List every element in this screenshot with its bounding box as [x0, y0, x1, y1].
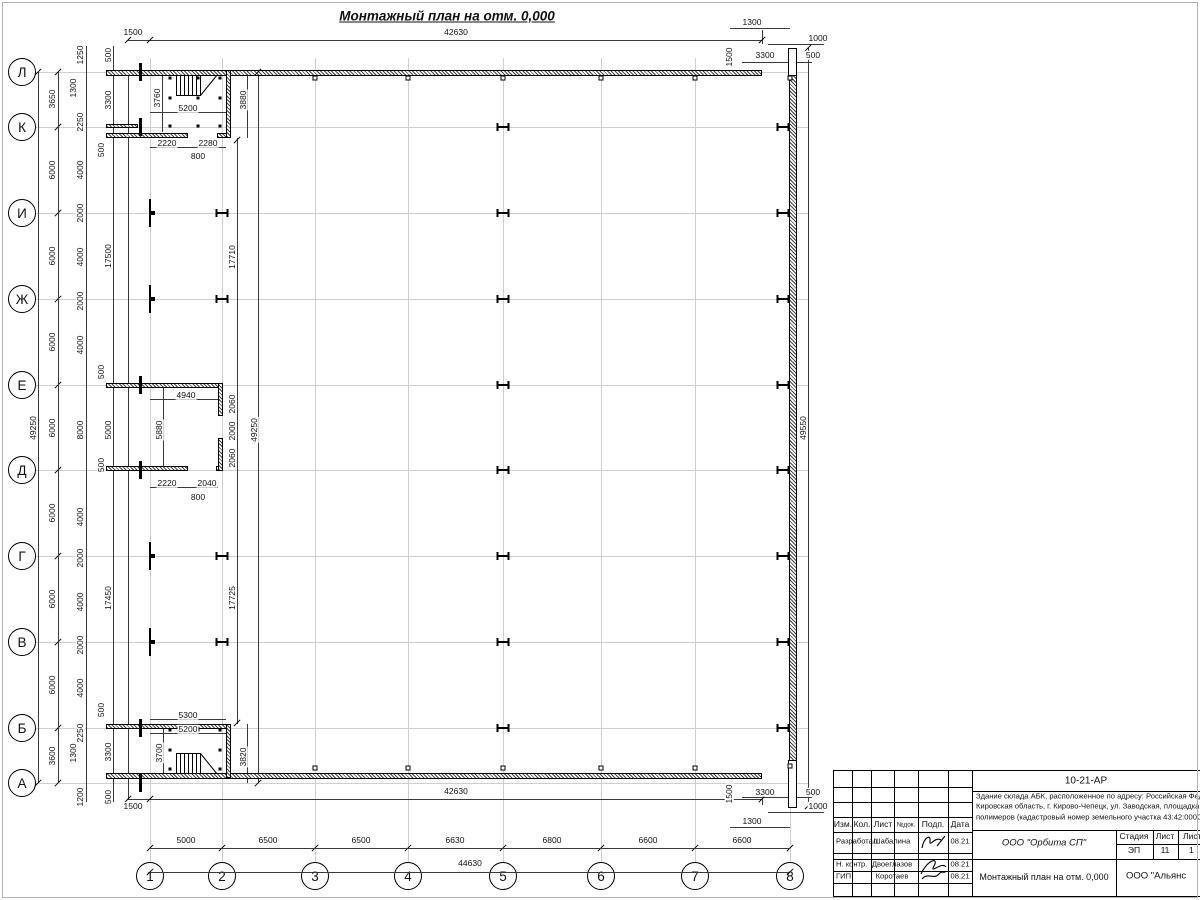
wall: [226, 724, 231, 778]
wall: [226, 70, 231, 138]
row-axis-bubble: Е: [8, 371, 36, 399]
steel-column-h: [777, 381, 790, 389]
steel-column-h: [497, 381, 510, 389]
dim-label: 1250: [76, 45, 85, 66]
dim-label: 5200: [178, 725, 199, 734]
steel-column-h: [777, 123, 790, 131]
steel-column-h: [777, 638, 790, 646]
wall: [106, 124, 138, 128]
signature-strokes: [918, 832, 948, 886]
steel-column-h: [497, 466, 510, 474]
dim-label: 3650: [48, 89, 57, 110]
steel-column-h: [777, 209, 790, 217]
dim-line: [128, 799, 762, 800]
dim-label: 6000: [48, 246, 57, 267]
dim-label: 49250: [250, 417, 259, 443]
tb-name-ncontrol: Двоеглазов: [872, 861, 912, 870]
steel-column-h: [497, 123, 510, 131]
steel-column-h: [777, 552, 790, 560]
wall-cap: [139, 63, 142, 81]
steel-column-h: [777, 724, 790, 732]
tb-line: [834, 832, 972, 833]
wall: [106, 773, 762, 779]
dim-label: 1000: [808, 802, 829, 811]
room-column-dot: [197, 97, 200, 100]
room-column-dot: [197, 77, 200, 80]
dim-label: 44630: [457, 859, 483, 868]
wall-cap: [139, 774, 142, 792]
dim-label: 3880: [239, 90, 248, 111]
dim-label: 6800: [542, 836, 563, 845]
row-axis-bubble: А: [8, 769, 36, 797]
tb-line: [834, 883, 972, 884]
steel-column-h: [216, 295, 229, 303]
dim-label: 5200: [178, 104, 199, 113]
row-axis-bubble: И: [8, 199, 36, 227]
dim-line: [768, 812, 824, 813]
steel-column-t: [149, 199, 151, 227]
dim-label: 4000: [76, 678, 85, 699]
dim-label: 3300: [755, 51, 776, 60]
col-axis-line: [503, 58, 504, 862]
dim-label: 800: [190, 493, 206, 502]
dim-line: [128, 40, 762, 41]
tb-sheets-value: 1: [1189, 846, 1194, 856]
col-axis-bubble: 6: [587, 862, 615, 890]
tb-org2: ООО "Альянс: [1126, 872, 1186, 883]
tb-name-developer: Шабалина: [874, 838, 911, 847]
dim-label: 5000: [104, 420, 113, 441]
dim-label: 6500: [258, 836, 279, 845]
steel-column-t: [149, 285, 151, 313]
wall-column-mark: [406, 76, 411, 81]
room-column-dot: [219, 768, 222, 771]
dim-label: 42630: [443, 28, 469, 37]
tb-line: [871, 771, 872, 897]
tb-name-gip: Коротаев: [876, 873, 909, 882]
dim-label: 2000: [76, 203, 85, 224]
dim-line: [237, 138, 238, 724]
wall: [218, 438, 223, 471]
col-axis-line: [315, 58, 316, 862]
room-column-dot: [169, 729, 172, 732]
steel-column-h: [777, 466, 790, 474]
dim-label: 8000: [76, 420, 85, 441]
tb-stage-header: Стадия: [1120, 832, 1149, 842]
dim-label: 3300: [104, 90, 113, 111]
wall-end-box: [788, 48, 797, 76]
tb-line: [852, 771, 853, 897]
wall-column-mark: [788, 764, 793, 769]
col-axis-line: [408, 58, 409, 862]
tb-sheet-header: Лист: [1156, 832, 1174, 842]
tb-sheets-header: Листов: [1183, 832, 1200, 842]
tb-drawing-name: Монтажный план на отм. 0,000: [979, 872, 1108, 882]
dim-label: 17725: [228, 585, 237, 611]
col-axis-bubble: 1: [136, 862, 164, 890]
steel-column-t: [149, 542, 151, 570]
tb-col-list: Лист: [874, 820, 892, 830]
dim-label: 4000: [76, 247, 85, 268]
steel-column-h: [497, 724, 510, 732]
dim-label: 5300: [178, 711, 199, 720]
wall: [106, 70, 762, 76]
steel-column-h: [497, 638, 510, 646]
steel-column-h: [216, 552, 229, 560]
dim-label: 500: [97, 702, 106, 718]
dim-label: 2040: [197, 479, 218, 488]
dim-label: 6000: [48, 418, 57, 439]
wall-cap: [139, 376, 142, 394]
dim-label: 2280: [198, 139, 219, 148]
dim-label: 49250: [29, 415, 38, 441]
dim-label: 1500: [123, 802, 144, 811]
col-axis-line: [695, 58, 696, 862]
tb-stage-value: ЭП: [1128, 846, 1140, 856]
dim-label: 49550: [799, 415, 808, 441]
wall-column-mark: [693, 766, 698, 771]
col-axis-line: [601, 58, 602, 862]
wall-column-mark: [406, 766, 411, 771]
dim-label: 6000: [48, 160, 57, 181]
dim-label: 2220: [157, 479, 178, 488]
dim-label: 4000: [76, 335, 85, 356]
room-column-dot: [197, 125, 200, 128]
dim-line: [150, 848, 790, 849]
dim-tick: [233, 719, 240, 726]
room-column-dot: [169, 768, 172, 771]
wall: [218, 383, 223, 416]
dim-label: 1300: [742, 18, 763, 27]
dim-label: 2060: [228, 394, 237, 415]
room-column-dot: [169, 125, 172, 128]
dim-label: 500: [805, 788, 821, 797]
wall-column-mark: [313, 766, 318, 771]
row-axis-bubble: Г: [8, 542, 36, 570]
drawing-title: Монтажный план на отм. 0,000: [339, 9, 555, 24]
dim-label: 500: [104, 47, 113, 63]
col-axis-bubble: 5: [489, 862, 517, 890]
dim-label: 6000: [48, 589, 57, 610]
dim-label: 1300: [69, 78, 78, 99]
wall-column-mark: [313, 76, 318, 81]
dim-label: 6500: [351, 836, 372, 845]
steel-column-h: [216, 209, 229, 217]
tb-date-developer: 08.21: [950, 838, 969, 847]
room-column-dot: [169, 77, 172, 80]
dim-line: [742, 797, 812, 798]
dim-line: [86, 46, 87, 802]
dim-label: 2000: [228, 421, 237, 442]
dim-label: 2250: [76, 112, 85, 133]
dim-label: 5000: [176, 836, 197, 845]
dim-line: [730, 28, 790, 29]
tb-line: [834, 853, 972, 854]
drawing-sheet: Монтажный план на отм. 0,000 ЛКИЖЕДГВБА1…: [0, 0, 1200, 900]
dim-label: 3700: [155, 743, 164, 764]
wall: [789, 74, 797, 762]
tb-line: [972, 859, 1200, 860]
room-column-dot: [219, 749, 222, 752]
dim-label: 1500: [725, 47, 734, 68]
dim-line: [38, 72, 39, 783]
dim-label: 2000: [76, 635, 85, 656]
wall-column-mark: [501, 76, 506, 81]
tb-role-ncontrol: Н. контр.: [836, 861, 867, 870]
dim-label: 1200: [76, 787, 85, 808]
steel-column-h: [497, 295, 510, 303]
dim-label: 17450: [104, 585, 113, 611]
room-column-dot: [169, 97, 172, 100]
tb-col-ndok: №док.: [897, 821, 915, 828]
tb-role-developer: Разработал: [836, 838, 877, 847]
steel-column-h: [216, 638, 229, 646]
tb-line: [1116, 830, 1117, 897]
tb-role-gip: ГИП: [836, 873, 851, 882]
tb-description-line3: полимеров (кадастровый номер земельного …: [976, 814, 1200, 823]
dim-label: 500: [97, 142, 106, 158]
dim-label: 6600: [638, 836, 659, 845]
dim-label: 5880: [155, 420, 164, 441]
dim-label: 2000: [76, 548, 85, 569]
row-axis-bubble: Д: [8, 456, 36, 484]
dim-label: 3760: [153, 88, 162, 109]
dim-label: 42630: [443, 787, 469, 796]
dim-label: 1500: [123, 28, 144, 37]
dim-label: 4940: [176, 391, 197, 400]
dim-label: 17710: [228, 244, 237, 270]
dim-label: 800: [190, 152, 206, 161]
tb-date-gip: 08.21: [950, 873, 969, 882]
room-column-dot: [219, 729, 222, 732]
wall: [106, 466, 188, 471]
dim-label: 1300: [69, 743, 78, 764]
title-block: Изм. Кол. Лист №док. Подп. Дата Разработ…: [833, 770, 1200, 897]
dim-label: 2250: [76, 723, 85, 744]
dim-line: [162, 76, 163, 132]
col-axis-line: [150, 58, 151, 862]
wall-column-mark: [599, 766, 604, 771]
row-axis-bubble: Б: [8, 714, 36, 742]
wall-column-mark: [693, 76, 698, 81]
dim-label: 500: [104, 789, 113, 805]
tb-date-ncontrol: 08.21: [950, 861, 969, 870]
room-column-dot: [219, 97, 222, 100]
wall-column-mark: [501, 766, 506, 771]
dim-label: 4000: [76, 507, 85, 528]
tb-description-line1: Здание склада АБК, расположенное по адре…: [976, 793, 1200, 802]
room-column-dot: [219, 125, 222, 128]
dim-label: 1000: [808, 34, 829, 43]
room-column-dot: [219, 77, 222, 80]
dim-label: 2220: [157, 139, 178, 148]
tb-col-kol: Кол.: [854, 820, 871, 830]
tb-doc-code: 10-21-АР: [1065, 775, 1107, 787]
room-column-dot: [169, 749, 172, 752]
wall-cap: [139, 719, 142, 737]
dim-label: 6000: [48, 332, 57, 353]
dim-label: 6000: [48, 503, 57, 524]
tb-col-podp: Подп.: [922, 820, 945, 830]
row-axis-bubble: В: [8, 628, 36, 656]
dim-label: 3820: [239, 747, 248, 768]
tb-line: [834, 787, 972, 788]
tb-line: [834, 817, 972, 818]
tb-org1: ООО "Орбита СП": [1002, 839, 1086, 850]
dim-label: 4000: [76, 592, 85, 613]
tb-sheet-value: 11: [1161, 846, 1170, 856]
dim-label: 500: [97, 457, 106, 473]
dim-line: [808, 48, 809, 806]
steel-column-h: [777, 295, 790, 303]
dim-line: [128, 70, 129, 799]
dim-label: 1500: [725, 784, 734, 805]
dim-line: [58, 72, 59, 783]
dim-label: 500: [97, 364, 106, 380]
dim-label: 3600: [48, 746, 57, 767]
dim-line: [113, 46, 114, 802]
steel-column-t: [149, 628, 151, 656]
tb-col-data: Дата: [951, 820, 970, 830]
dim-label: 6000: [48, 675, 57, 696]
dim-label: 6630: [445, 836, 466, 845]
dim-line: [768, 44, 824, 45]
dim-label: 3300: [104, 742, 113, 763]
col-axis-bubble: 8: [776, 862, 804, 890]
tb-line: [948, 771, 949, 897]
dim-label: 2000: [76, 291, 85, 312]
col-axis-bubble: 7: [681, 862, 709, 890]
wall-cap: [139, 118, 142, 136]
col-axis-bubble: 4: [394, 862, 422, 890]
dim-label: 6600: [732, 836, 753, 845]
row-axis-bubble: Л: [8, 58, 36, 86]
col-axis-bubble: 2: [208, 862, 236, 890]
dim-line: [730, 827, 790, 828]
tb-line: [972, 771, 973, 897]
wall-cap: [139, 461, 142, 479]
tb-line: [834, 802, 972, 803]
col-axis-bubble: 3: [301, 862, 329, 890]
tb-description-line2: Кировская область, г. Кирово-Чепецк, ул.…: [976, 803, 1200, 812]
dim-label: 2060: [228, 448, 237, 469]
dim-label: 17500: [104, 243, 113, 269]
dim-line: [150, 872, 790, 873]
dim-label: 1300: [742, 817, 763, 826]
row-axis-bubble: Ж: [8, 285, 36, 313]
dim-line: [742, 62, 812, 63]
dim-label: 3300: [755, 788, 776, 797]
row-axis-bubble: К: [8, 113, 36, 141]
tb-col-izm: Изм.: [834, 820, 852, 830]
wall-column-mark: [788, 76, 793, 81]
dim-label: 4000: [76, 160, 85, 181]
wall: [106, 383, 220, 388]
steel-column-h: [497, 552, 510, 560]
dim-label: 500: [805, 51, 821, 60]
wall-column-mark: [599, 76, 604, 81]
steel-column-h: [497, 209, 510, 217]
